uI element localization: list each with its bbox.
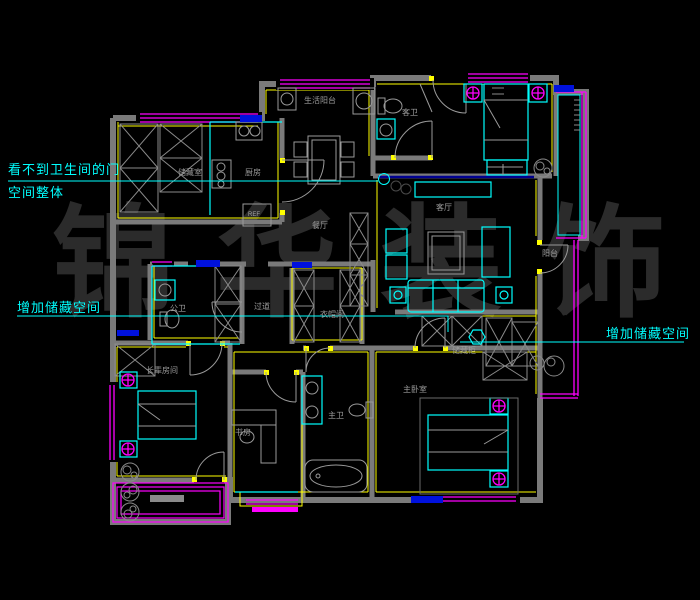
floorplan-drawing [0,0,700,600]
bay-window [558,95,580,235]
room-label-guest-bath: 客卫 [402,109,418,117]
cad-canvas: 锦 华 装 饰 [0,0,700,600]
annotation-add-storage-left: 增加储藏空间 [17,301,101,316]
room-label-master-bedroom: 主卧室 [403,386,427,394]
door-gaps [431,71,467,84]
room-label-study: 书房 [235,429,251,437]
room-label-public-bath: 公卫 [170,305,186,313]
room-label-master-bath: 主卫 [328,412,344,420]
room-label-living: 客厅 [436,204,452,212]
room-label-dining: 餐厅 [312,222,328,230]
annotation-add-storage-right: 增加储藏空间 [606,327,690,342]
room-label-kitchen: 厨房 [245,169,261,177]
room-label-laundry-balcony: 生活阳台 [304,97,336,105]
fixture-label-refrigerator: REF [248,212,260,218]
magenta-symbols [122,87,544,485]
room-label-balcony-right: 阳台 [542,250,558,258]
room-label-storage-room: 储藏室 [178,169,202,177]
room-label-storage-cabinet: 储藏柜 [452,347,476,355]
interior-walls [113,84,556,500]
annotation-bathroom-door-line2: 空间整体 [8,186,64,201]
room-label-elders-room: 长辈房间 [146,367,178,375]
room-label-hallway: 过道 [254,303,270,311]
annotation-bathroom-door-line1: 看不到卫生间的门 [8,163,120,178]
furniture-cyan [120,84,547,492]
room-label-cloakroom: 衣帽间 [320,311,344,319]
blue-accents [117,85,574,503]
